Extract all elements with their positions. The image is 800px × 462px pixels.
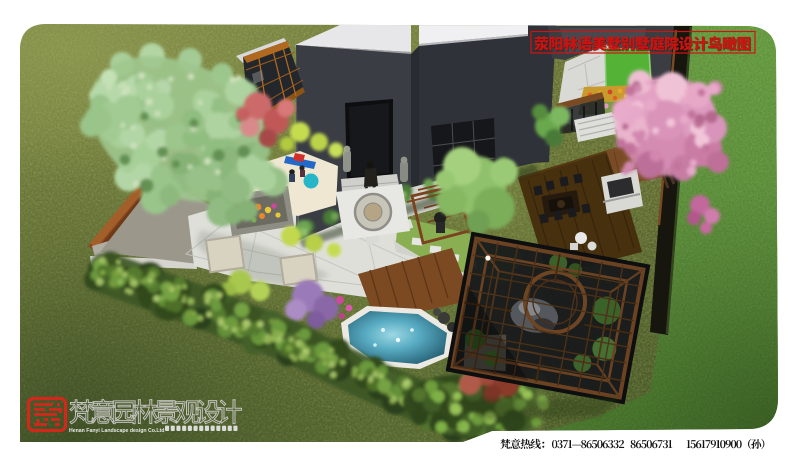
svg-text:Henan Fanyi Landscape design C: Henan Fanyi Landscape design Co.Ltd [69, 428, 164, 434]
